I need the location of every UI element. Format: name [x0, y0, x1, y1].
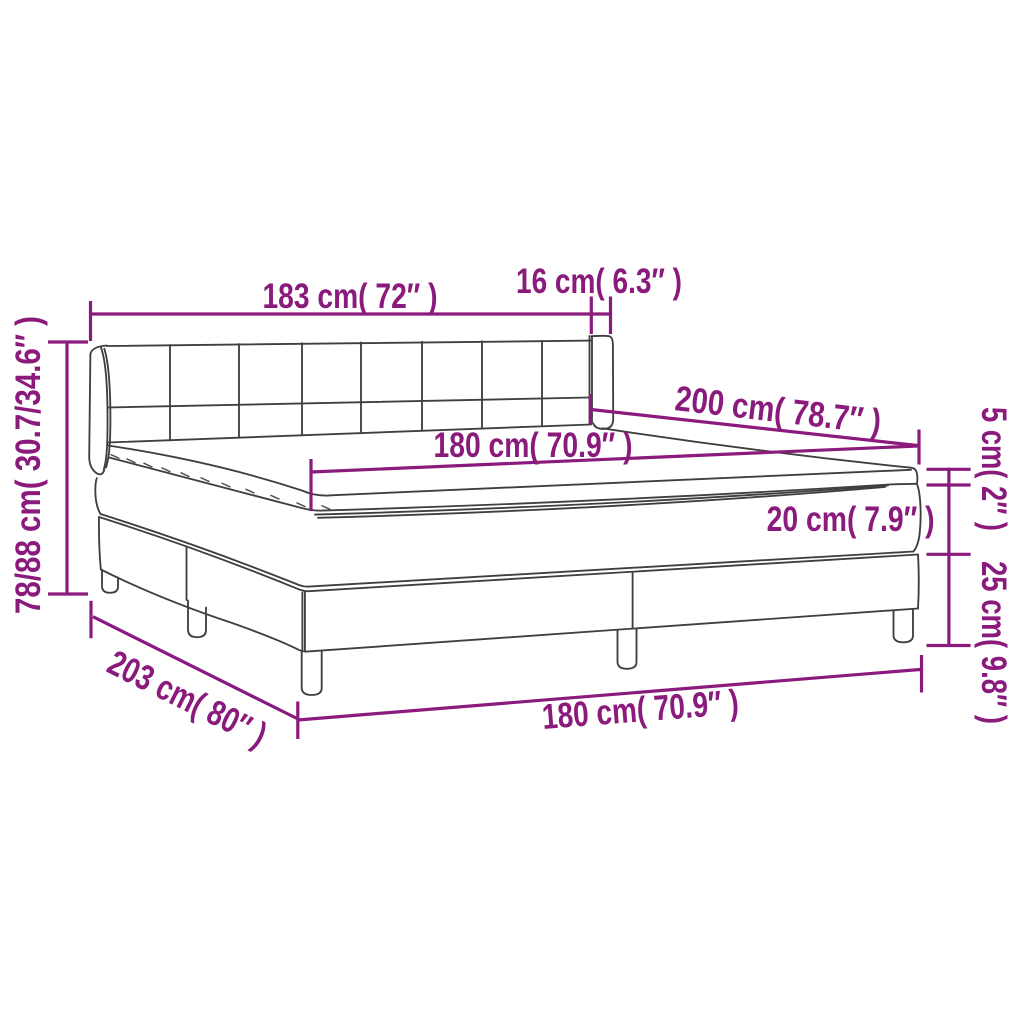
- svg-text:180 cm( 70.9″ ): 180 cm( 70.9″ ): [434, 425, 633, 465]
- svg-text:16 cm( 6.3″ ): 16 cm( 6.3″ ): [516, 261, 682, 301]
- svg-text:183 cm( 72″ ): 183 cm( 72″ ): [263, 276, 438, 316]
- svg-text:20 cm( 7.9″ ): 20 cm( 7.9″ ): [767, 499, 935, 539]
- svg-text:78/88 cm( 30.7/34.6″ ): 78/88 cm( 30.7/34.6″ ): [8, 316, 48, 614]
- svg-text:5 cm( 2″ ): 5 cm( 2″ ): [974, 407, 1014, 531]
- svg-text:25 cm( 9.8″ ): 25 cm( 9.8″ ): [974, 561, 1014, 724]
